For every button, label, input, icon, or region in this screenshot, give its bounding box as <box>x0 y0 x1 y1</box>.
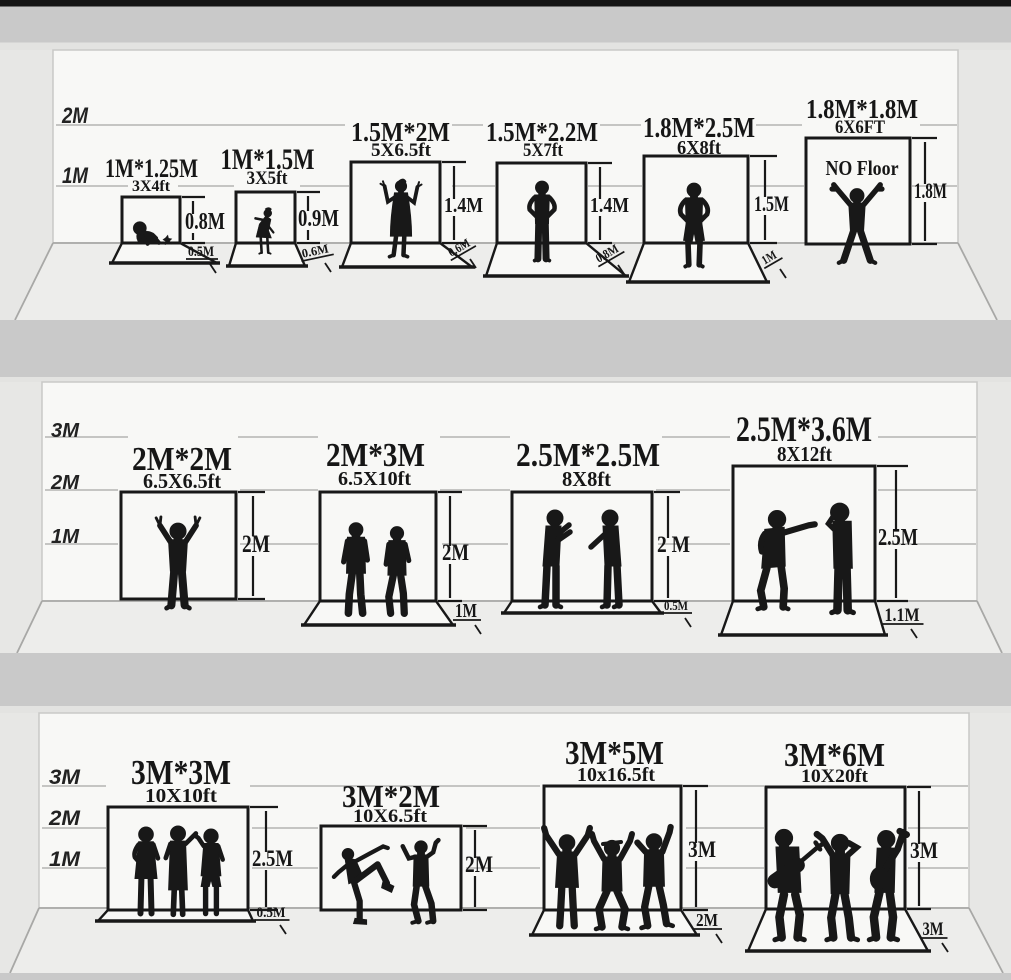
svg-text:5X7ft: 5X7ft <box>523 140 564 161</box>
svg-text:3M: 3M <box>923 919 944 940</box>
svg-text:3M: 3M <box>910 838 938 863</box>
svg-text:3M: 3M <box>51 420 80 442</box>
svg-text:2M: 2M <box>242 529 270 558</box>
svg-text:2M: 2M <box>48 807 81 830</box>
svg-text:6X6FT: 6X6FT <box>835 118 886 138</box>
svg-text:2 M: 2 M <box>657 532 690 557</box>
svg-text:NO Floor: NO Floor <box>826 156 899 180</box>
svg-text:2M: 2M <box>442 540 469 565</box>
svg-text:10x16.5ft: 10x16.5ft <box>577 764 655 786</box>
svg-text:8X8ft: 8X8ft <box>562 467 612 491</box>
svg-text:6.5X6.5ft: 6.5X6.5ft <box>143 469 222 493</box>
svg-text:10X20ft: 10X20ft <box>801 766 869 787</box>
svg-text:10X10ft: 10X10ft <box>145 785 217 807</box>
svg-text:0.8M: 0.8M <box>185 209 225 235</box>
svg-text:2.5M: 2.5M <box>878 525 918 551</box>
svg-text:1M: 1M <box>62 163 89 188</box>
svg-text:0.5M: 0.5M <box>664 599 688 613</box>
svg-text:8X12ft: 8X12ft <box>777 442 833 466</box>
svg-text:3X4ft: 3X4ft <box>132 178 171 195</box>
svg-text:2M: 2M <box>61 103 88 128</box>
svg-text:1M: 1M <box>49 848 81 871</box>
svg-text:1.1M: 1.1M <box>885 605 920 626</box>
svg-text:3X5ft: 3X5ft <box>247 168 289 189</box>
svg-text:2.5M: 2.5M <box>252 846 293 871</box>
svg-text:6X8ft: 6X8ft <box>677 137 721 159</box>
svg-text:1.8M: 1.8M <box>914 178 947 203</box>
svg-text:1.4M: 1.4M <box>590 193 629 217</box>
svg-text:1M: 1M <box>455 601 477 622</box>
svg-text:2M: 2M <box>696 910 718 930</box>
svg-text:1.4M: 1.4M <box>444 193 483 217</box>
svg-text:2M: 2M <box>50 472 80 494</box>
svg-text:0.5M: 0.5M <box>188 244 214 260</box>
svg-text:0.9M: 0.9M <box>298 206 339 232</box>
svg-text:1M: 1M <box>51 526 80 548</box>
svg-text:3M: 3M <box>688 837 716 862</box>
svg-text:6.5X10ft: 6.5X10ft <box>338 468 411 490</box>
svg-text:10X6.5ft: 10X6.5ft <box>353 806 428 827</box>
svg-text:0.5M: 0.5M <box>257 905 286 921</box>
svg-text:3M: 3M <box>49 766 81 789</box>
svg-text:1.5M: 1.5M <box>754 191 789 216</box>
svg-text:5X6.5ft: 5X6.5ft <box>371 140 432 161</box>
svg-text:2M: 2M <box>465 852 493 877</box>
